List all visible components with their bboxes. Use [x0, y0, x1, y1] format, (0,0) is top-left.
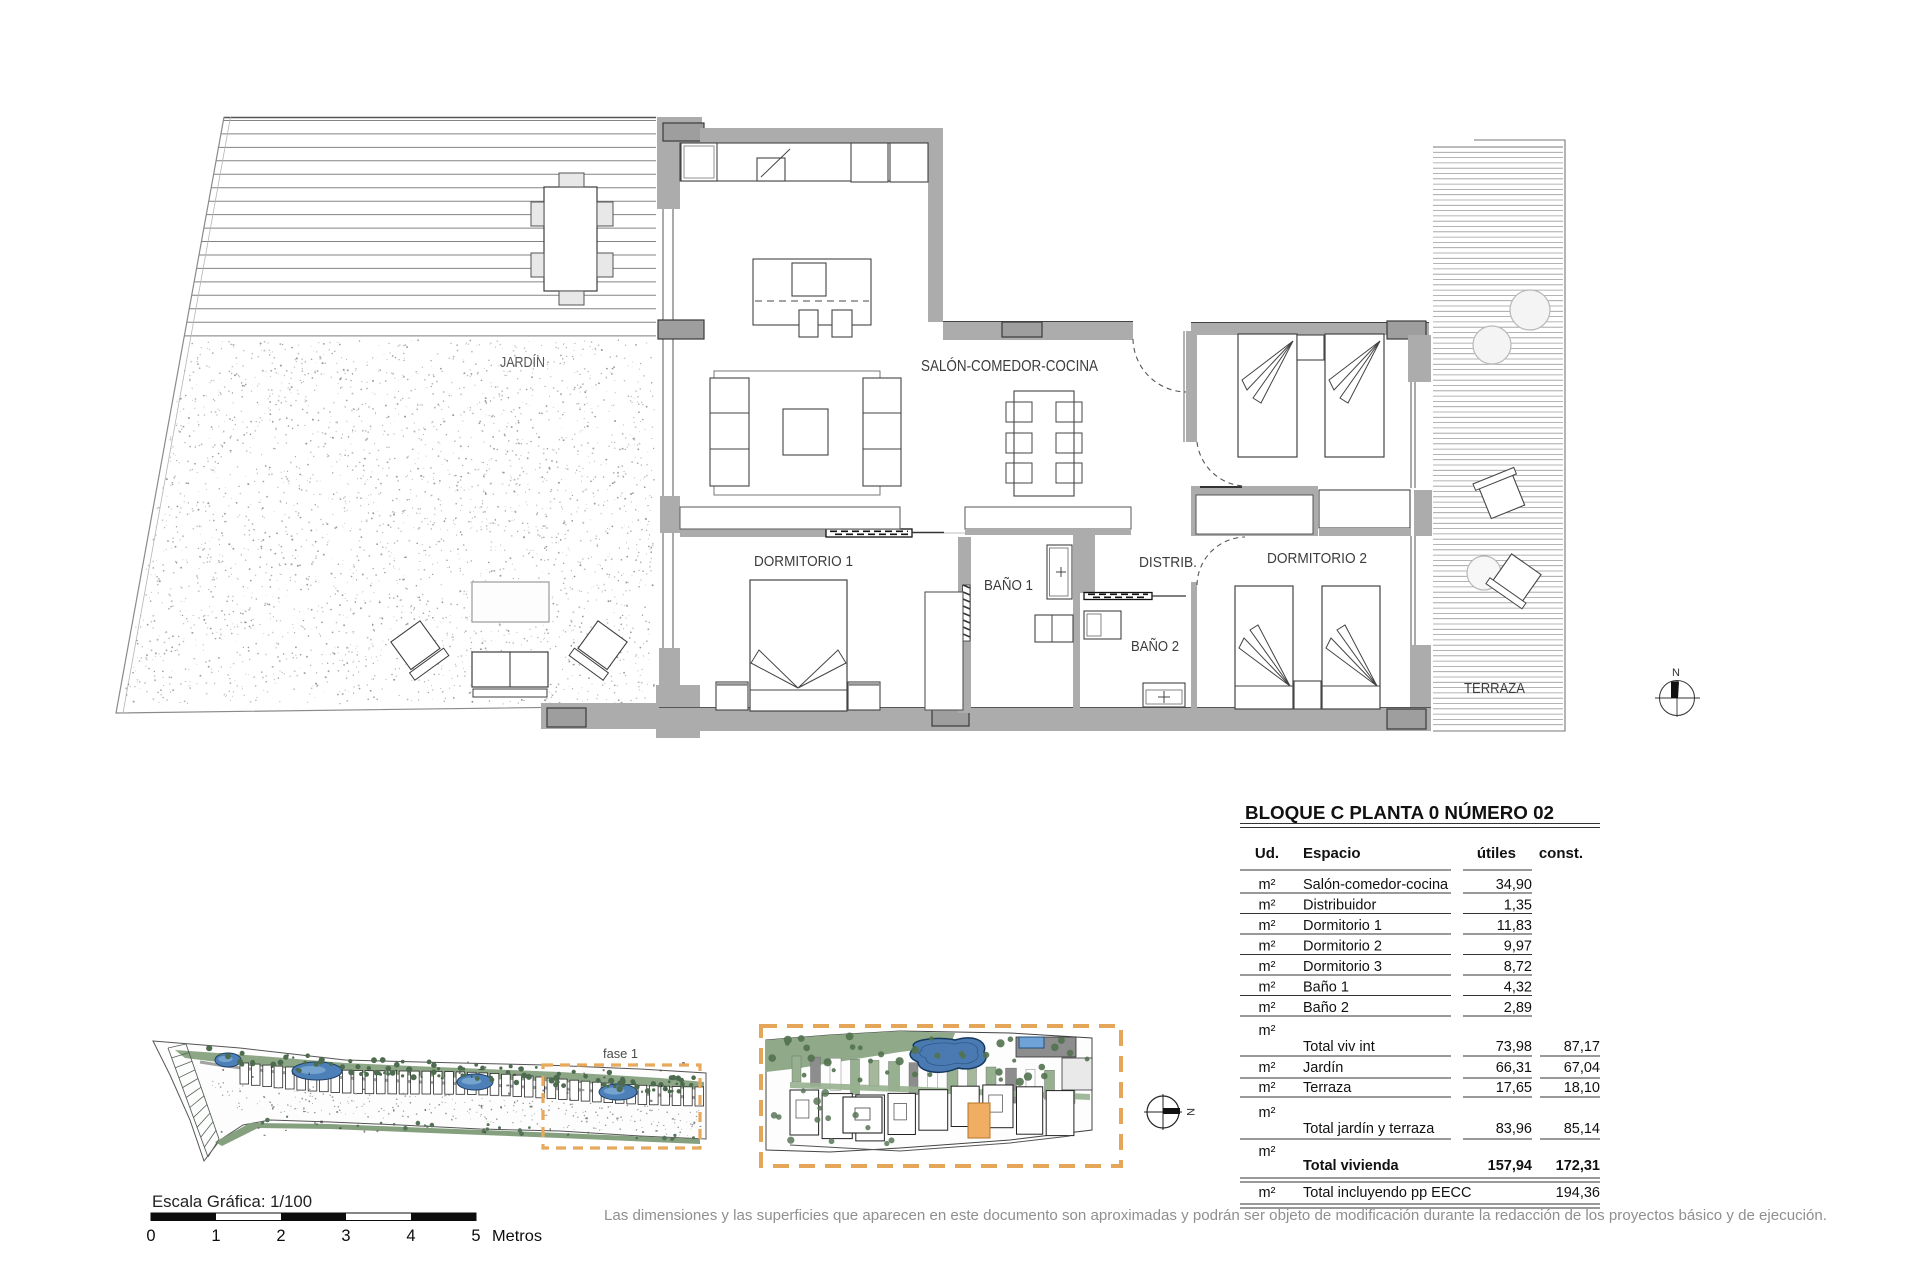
svg-text:m²: m²	[1259, 1185, 1276, 1201]
svg-text:0: 0	[146, 1227, 155, 1245]
svg-text:Total vivienda: Total vivienda	[1303, 1158, 1400, 1174]
svg-text:Metros: Metros	[492, 1228, 542, 1245]
svg-text:172,31: 172,31	[1556, 1158, 1600, 1174]
svg-text:Ud.: Ud.	[1255, 845, 1279, 862]
svg-text:Dormitorio 3: Dormitorio 3	[1303, 959, 1382, 975]
svg-text:útiles: útiles	[1477, 845, 1516, 862]
svg-text:157,94: 157,94	[1488, 1158, 1532, 1174]
svg-text:JARDÍN: JARDÍN	[500, 354, 545, 371]
svg-text:m²: m²	[1259, 939, 1276, 955]
svg-text:m²: m²	[1259, 918, 1276, 934]
svg-text:17,65: 17,65	[1496, 1080, 1532, 1096]
svg-text:Baño 2: Baño 2	[1303, 1000, 1349, 1016]
svg-text:1,35: 1,35	[1504, 898, 1532, 914]
svg-text:m²: m²	[1259, 1000, 1276, 1016]
svg-text:const.: const.	[1539, 845, 1583, 862]
svg-text:m²: m²	[1259, 1060, 1276, 1076]
svg-text:N: N	[1672, 667, 1680, 679]
svg-text:5: 5	[471, 1227, 480, 1245]
svg-text:67,04: 67,04	[1564, 1060, 1600, 1076]
svg-text:m²: m²	[1259, 1144, 1276, 1160]
svg-text:Total incluyendo pp EECC: Total incluyendo pp EECC	[1303, 1185, 1471, 1201]
svg-text:11,83: 11,83	[1497, 918, 1532, 934]
svg-text:Distribuidor: Distribuidor	[1303, 898, 1376, 914]
svg-text:fase 1: fase 1	[603, 1046, 638, 1061]
svg-text:BAÑO 1: BAÑO 1	[984, 577, 1033, 594]
svg-text:Jardín: Jardín	[1303, 1060, 1343, 1076]
svg-text:m²: m²	[1259, 980, 1276, 996]
svg-text:83,96: 83,96	[1496, 1121, 1532, 1137]
svg-text:Escala Gráfica: 1/100: Escala Gráfica: 1/100	[152, 1193, 312, 1211]
svg-text:TERRAZA: TERRAZA	[1464, 680, 1525, 697]
svg-text:85,14: 85,14	[1564, 1121, 1600, 1137]
svg-text:DORMITORIO 2: DORMITORIO 2	[1267, 550, 1367, 567]
svg-text:m²: m²	[1259, 959, 1276, 975]
svg-text:DORMITORIO 1: DORMITORIO 1	[754, 553, 853, 570]
svg-text:Salón-comedor-cocina: Salón-comedor-cocina	[1303, 877, 1449, 893]
svg-text:Dormitorio 1: Dormitorio 1	[1303, 918, 1382, 934]
svg-text:m²: m²	[1259, 1105, 1276, 1121]
svg-text:8,72: 8,72	[1504, 959, 1532, 975]
svg-text:194,36: 194,36	[1556, 1185, 1600, 1201]
svg-text:34,90: 34,90	[1496, 877, 1532, 893]
svg-text:Total viv int: Total viv int	[1303, 1039, 1375, 1055]
svg-text:66,31: 66,31	[1496, 1060, 1532, 1076]
svg-text:Dormitorio 2: Dormitorio 2	[1303, 939, 1382, 955]
svg-text:Espacio: Espacio	[1303, 845, 1361, 862]
svg-text:2: 2	[276, 1227, 285, 1245]
svg-text:Terraza: Terraza	[1303, 1080, 1352, 1096]
svg-text:3: 3	[341, 1227, 350, 1245]
svg-text:m²: m²	[1259, 1080, 1276, 1096]
svg-text:Total jardín y terraza: Total jardín y terraza	[1303, 1121, 1435, 1137]
svg-text:m²: m²	[1259, 1023, 1276, 1039]
svg-text:9,97: 9,97	[1504, 939, 1532, 955]
svg-text:m²: m²	[1259, 898, 1276, 914]
svg-text:Las dimensiones y las superfic: Las dimensiones y las superficies que ap…	[604, 1208, 1827, 1224]
svg-text:DISTRIB.: DISTRIB.	[1139, 554, 1197, 571]
svg-text:18,10: 18,10	[1564, 1080, 1600, 1096]
svg-text:SALÓN-COMEDOR-COCINA: SALÓN-COMEDOR-COCINA	[921, 358, 1099, 375]
svg-text:4: 4	[406, 1227, 415, 1245]
svg-text:4,32: 4,32	[1504, 980, 1532, 996]
svg-text:73,98: 73,98	[1496, 1039, 1532, 1055]
svg-text:m²: m²	[1259, 877, 1276, 893]
svg-text:87,17: 87,17	[1564, 1039, 1600, 1055]
svg-text:N: N	[1184, 1108, 1196, 1116]
svg-text:BLOQUE C PLANTA 0 NÚMERO 02: BLOQUE C PLANTA 0 NÚMERO 02	[1245, 802, 1554, 823]
svg-text:Baño 1: Baño 1	[1303, 980, 1349, 996]
svg-text:2,89: 2,89	[1504, 1000, 1532, 1016]
svg-text:BAÑO 2: BAÑO 2	[1131, 638, 1179, 655]
svg-text:1: 1	[211, 1227, 220, 1245]
